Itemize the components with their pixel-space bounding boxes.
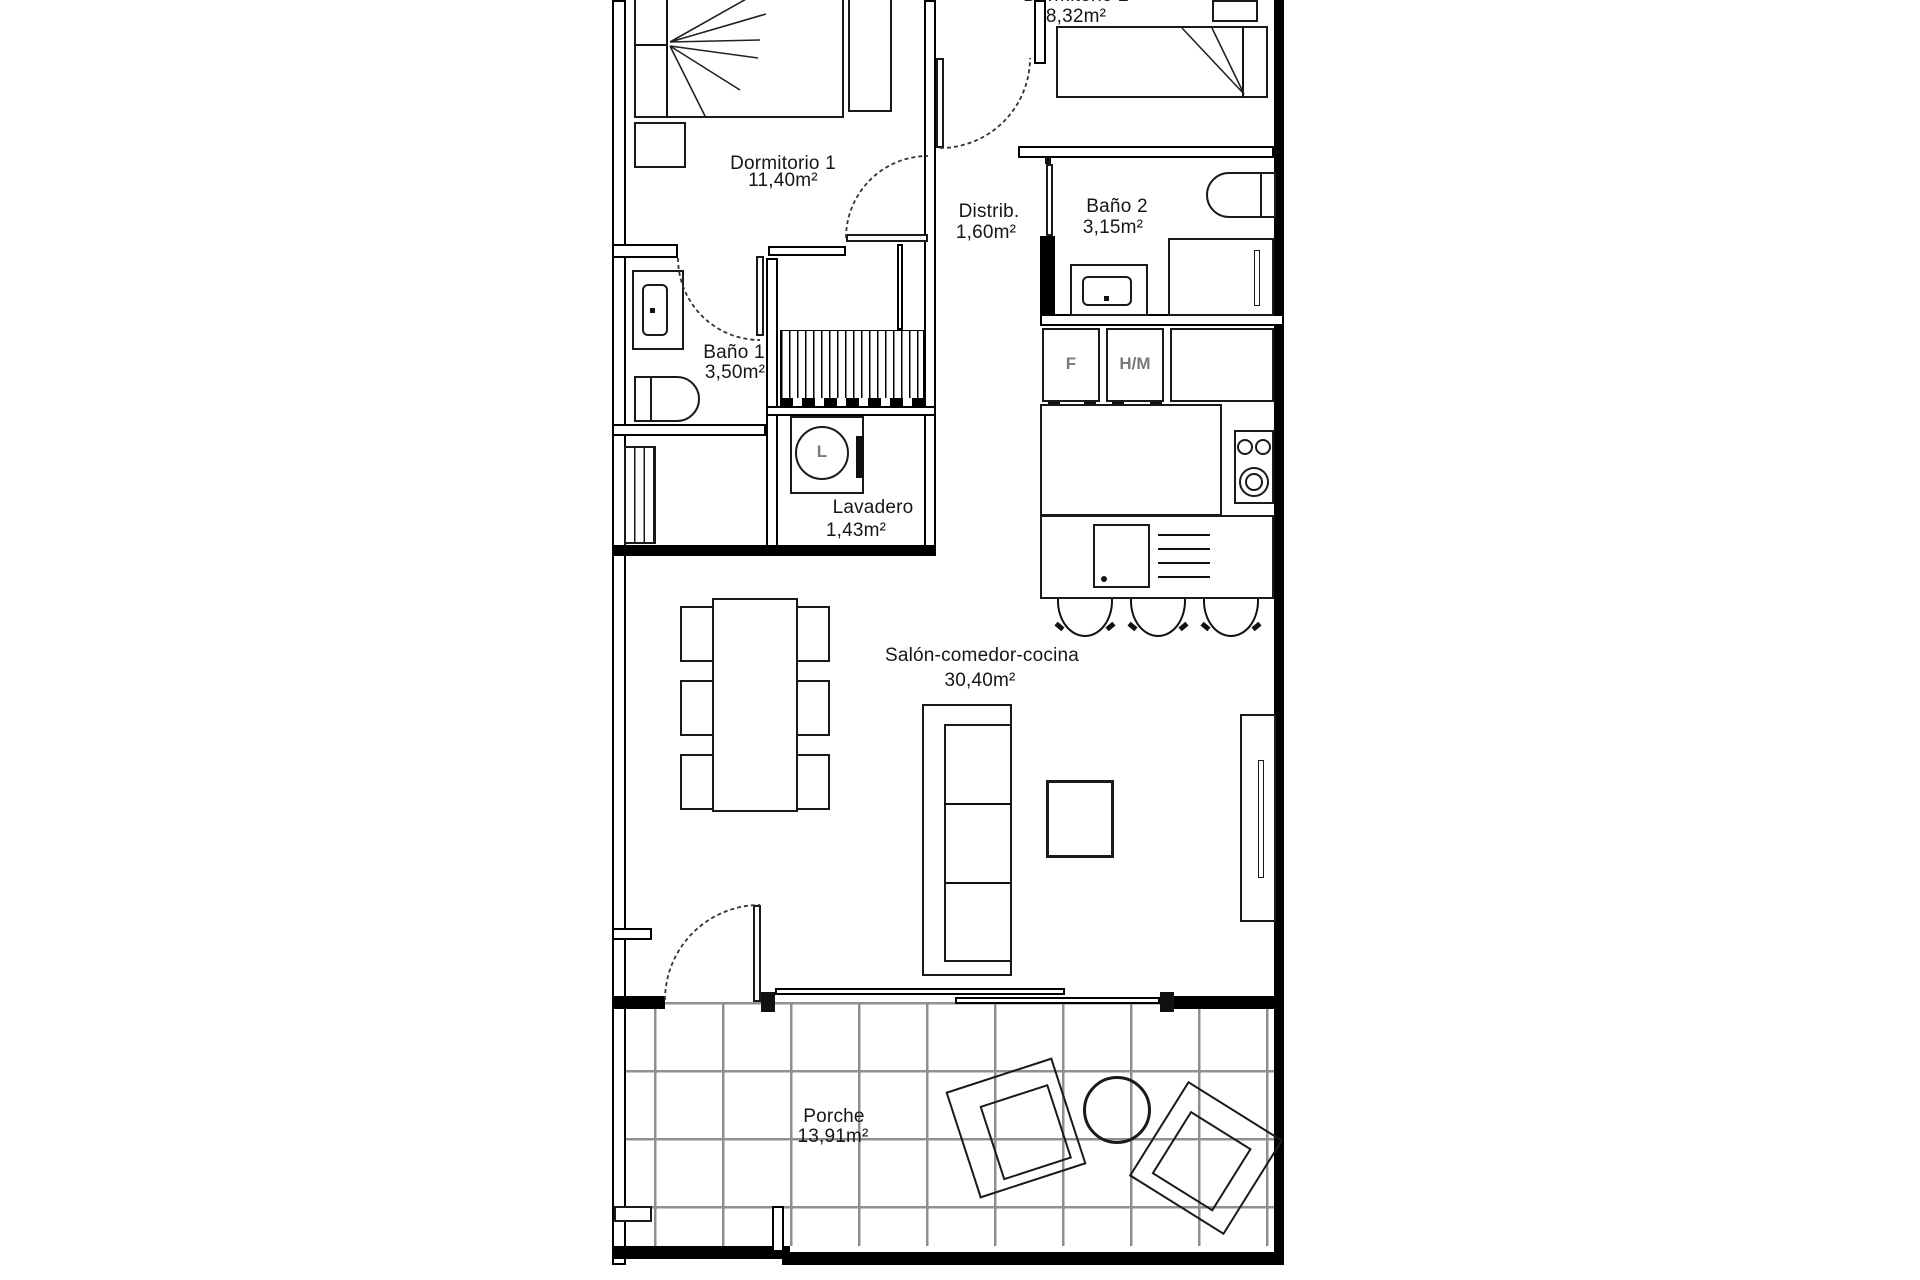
kitchen-counter-box xyxy=(1170,328,1274,402)
sink-bano2 xyxy=(1082,276,1132,306)
sink-bano1 xyxy=(642,284,668,336)
label-bano2-area: 3,15m² xyxy=(1083,218,1143,238)
wall-boundary-left xyxy=(612,996,665,1009)
label-dormitorio2-area: 8,32m² xyxy=(1046,7,1106,27)
dining-chair xyxy=(796,754,830,810)
label-distrib-name: Distrib. xyxy=(959,202,1020,222)
bed-dorm1-pillow-split xyxy=(634,44,666,46)
hob-burner-small xyxy=(1237,439,1253,455)
door-arc-dormitorio1 xyxy=(846,156,928,238)
sliding-door-track-b xyxy=(955,997,1160,1004)
label-salon-name: Salón-comedor-cocina xyxy=(885,646,1079,666)
bar-stool xyxy=(1203,599,1259,637)
door-arc-dormitorio2 xyxy=(940,58,1030,148)
dining-chair xyxy=(796,680,830,736)
wall-porch-bottom-jamb xyxy=(772,1206,784,1252)
coffee-table xyxy=(1046,780,1114,858)
fridge-label: F xyxy=(1042,354,1100,374)
wall-bano2-left-black xyxy=(1040,236,1055,326)
door-bano2-hinge xyxy=(1045,157,1051,164)
label-lavadero-name: Lavadero xyxy=(833,498,914,518)
bar-stool xyxy=(1057,599,1113,637)
wardrobe-dorm2 xyxy=(1212,0,1258,22)
wall-porch-bottom-right xyxy=(782,1252,1284,1265)
faucet-bano2 xyxy=(1104,296,1109,301)
label-salon-area: 30,40m² xyxy=(944,671,1015,691)
door-bano1 xyxy=(756,256,764,336)
wall-entry-stub xyxy=(612,928,652,940)
nightstand-dorm1 xyxy=(634,122,686,168)
shelf-unit xyxy=(624,446,656,544)
porch-pillar xyxy=(614,1206,652,1222)
label-dormitorio1-area: 11,40m² xyxy=(748,171,818,191)
slider-post-left xyxy=(761,992,775,1012)
label-bano1-name: Baño 1 xyxy=(703,343,764,363)
sliding-door-track-a xyxy=(775,988,1065,995)
sofa-cushion-divider xyxy=(944,882,1012,884)
label-bano2-name: Baño 2 xyxy=(1086,197,1147,217)
door-arc-bano1 xyxy=(678,258,760,340)
drainboard-line xyxy=(1158,548,1210,550)
door-dormitorio1 xyxy=(846,234,928,242)
door-dormitorio2 xyxy=(936,58,944,148)
drainboard-line xyxy=(1158,534,1210,536)
door-arc-entrance xyxy=(665,905,760,1000)
desk-dorm1 xyxy=(848,0,892,112)
wall-hall-dorm2 xyxy=(1034,0,1046,64)
sofa-cushion-divider xyxy=(944,803,1012,805)
hob-burner-small xyxy=(1255,439,1271,455)
slider-post-right xyxy=(1160,992,1174,1012)
wall-salon-top xyxy=(612,545,936,556)
porch-round-table xyxy=(1083,1076,1151,1144)
wall-lavadero-top xyxy=(766,406,936,416)
door-entrance xyxy=(753,905,761,1002)
wall-dorm1-hall xyxy=(924,0,936,556)
label-porche-name: Porche xyxy=(803,1107,864,1127)
wall-dorm2-bano2 xyxy=(1018,146,1274,158)
shower-door-bar xyxy=(1254,250,1260,306)
wall-bano1-bottom xyxy=(612,424,766,436)
floor-plan: L F H/M xyxy=(0,0,1920,1280)
wardrobe-track xyxy=(780,398,924,406)
washing-machine-door xyxy=(856,436,864,478)
wall-outer-left xyxy=(612,0,626,1265)
label-distrib-area: 1,60m² xyxy=(956,223,1016,243)
dining-chair xyxy=(680,754,714,810)
toilet-bano2-tank xyxy=(1260,172,1276,218)
label-porche-area: 13,91m² xyxy=(797,1127,868,1147)
drainboard-line xyxy=(1158,562,1210,564)
porch-armchair-seat xyxy=(1152,1111,1252,1212)
bed-dorm1-pillow-line xyxy=(666,0,668,118)
island-faucet xyxy=(1101,576,1107,582)
label-lavadero-area: 1,43m² xyxy=(826,521,886,541)
dining-chair xyxy=(680,606,714,662)
faucet-bano1 xyxy=(650,308,655,313)
dining-chair xyxy=(680,680,714,736)
wall-porch-bottom-left xyxy=(612,1246,790,1259)
wall-closet-divider xyxy=(897,244,903,330)
wardrobe-hatch xyxy=(780,330,924,406)
washing-machine-label: L xyxy=(795,442,849,462)
wall-closet-top xyxy=(768,246,846,256)
wall-boundary-right xyxy=(1174,996,1284,1009)
bar-stool xyxy=(1130,599,1186,637)
bed-dorm2-pillow-line xyxy=(1242,26,1244,98)
door-bano2 xyxy=(1046,164,1053,236)
dining-table xyxy=(712,598,798,812)
drainboard-line xyxy=(1158,576,1210,578)
kitchen-floor-outline xyxy=(1040,404,1222,516)
tv-screen xyxy=(1258,760,1264,878)
oven-microwave-label: H/M xyxy=(1106,354,1164,374)
porch-armchair-seat xyxy=(979,1084,1072,1180)
dining-chair xyxy=(796,606,830,662)
kitchen-island xyxy=(1040,515,1274,599)
sofa-seats xyxy=(944,724,1012,962)
bed-dorm2 xyxy=(1056,26,1268,98)
label-bano1-area: 3,50m² xyxy=(705,363,765,383)
wall-dorm1-bottom xyxy=(612,244,678,258)
toilet-bano2-bowl xyxy=(1206,172,1264,218)
toilet-bano1-bowl xyxy=(650,376,700,422)
hob-burner-large-inner xyxy=(1245,473,1263,491)
